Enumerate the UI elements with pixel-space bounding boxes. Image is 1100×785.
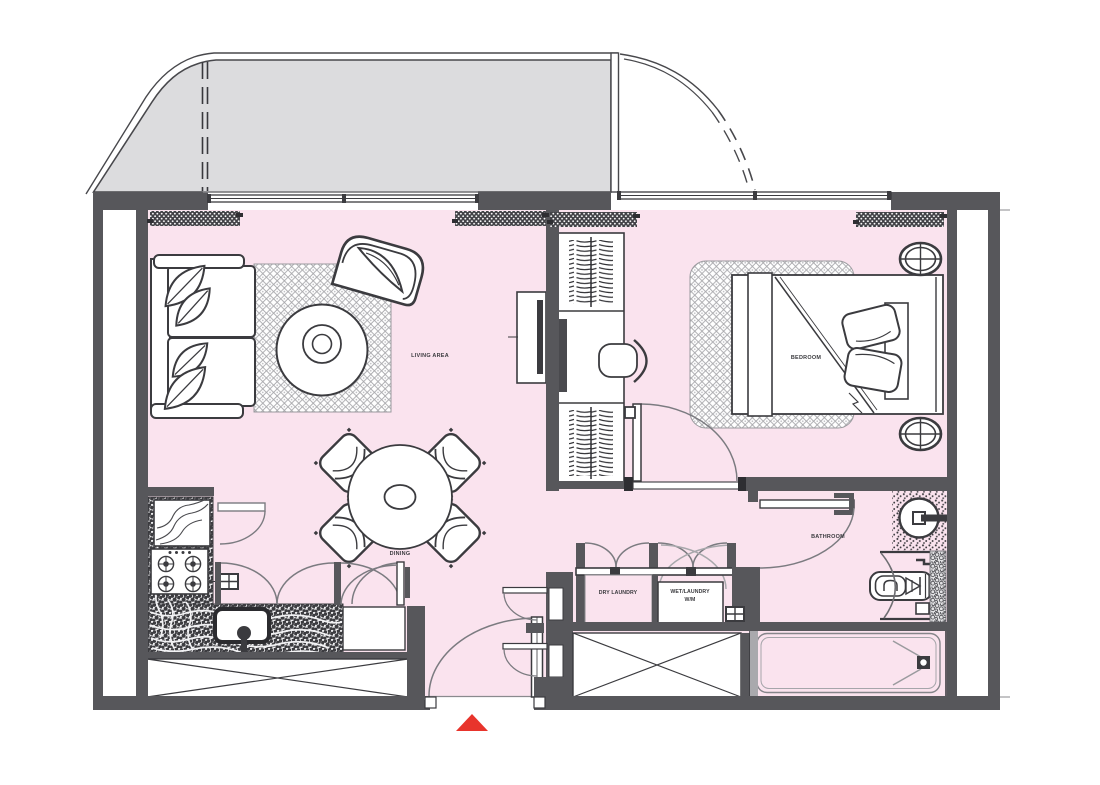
svg-text:DRY LAUNDRY: DRY LAUNDRY (599, 590, 638, 596)
svg-text:WET/LAUNDRY: WET/LAUNDRY (670, 589, 710, 595)
svg-text:DINING: DINING (390, 551, 411, 557)
svg-text:LIVING AREA: LIVING AREA (411, 353, 449, 359)
svg-text:W/M: W/M (685, 597, 696, 603)
svg-text:BEDROOM: BEDROOM (791, 355, 821, 361)
svg-text:BATHROOM: BATHROOM (811, 534, 845, 540)
